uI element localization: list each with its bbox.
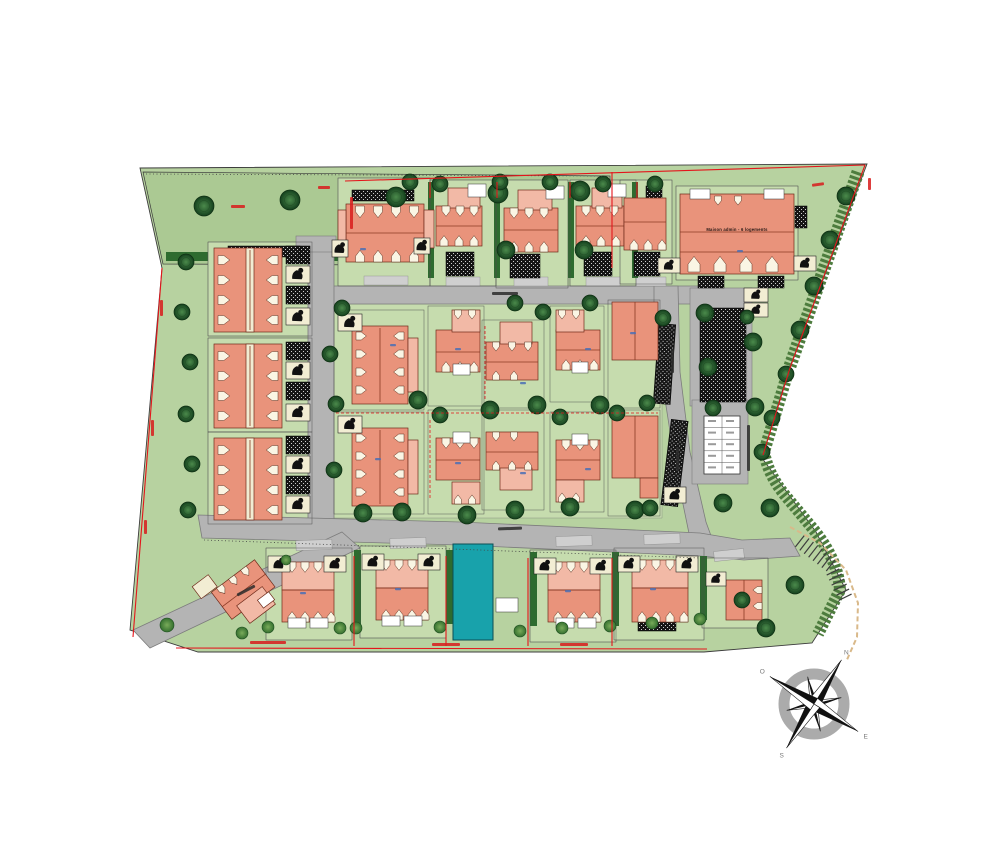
- car-glyph-icon: [298, 406, 303, 411]
- hatched-strip: [286, 342, 310, 360]
- bush-icon: [334, 622, 346, 634]
- dormer-box: [572, 434, 588, 445]
- car-parking-icon: [324, 556, 346, 572]
- hedge-strip: [446, 550, 453, 624]
- bike-shelter: [704, 416, 740, 474]
- bush-icon: [646, 617, 658, 629]
- tree-icon: [432, 407, 448, 423]
- micro-annotation: [868, 178, 871, 190]
- car-glyph-icon: [756, 305, 760, 309]
- car-glyph-icon: [669, 260, 674, 265]
- site-plan: Parking 16 places aériennesMaison admin …: [0, 0, 1000, 857]
- bike-cell-mark: [708, 432, 716, 434]
- car-parking-icon: [658, 258, 680, 273]
- building-roof: [500, 322, 532, 344]
- tree-icon: [626, 501, 644, 519]
- building: [352, 326, 418, 404]
- tree-icon: [178, 406, 194, 422]
- dormer-box: [382, 616, 400, 626]
- dormer-box: [578, 618, 596, 628]
- car-glyph-icon: [675, 489, 680, 494]
- car-glyph-icon: [805, 258, 810, 263]
- micro-annotation: [432, 643, 460, 646]
- tree-icon: [481, 401, 499, 419]
- hatched-strip: [510, 254, 540, 278]
- car-parking-icon: [286, 308, 310, 325]
- micro-annotation: [747, 425, 750, 471]
- bike-cell-mark: [708, 420, 716, 422]
- building: [612, 302, 658, 360]
- dormer-box: [288, 618, 306, 628]
- tree-icon: [182, 354, 198, 370]
- micro-annotation: [455, 348, 461, 350]
- tree-icon: [535, 304, 551, 320]
- dormer-box: [572, 362, 588, 373]
- building-roof: [640, 478, 658, 498]
- micro-annotation: [671, 349, 674, 373]
- micro-annotation: [520, 472, 526, 474]
- compass-letter: S: [780, 753, 785, 760]
- tree-icon: [354, 504, 372, 522]
- micro-annotation: [650, 588, 656, 590]
- bush-icon: [604, 620, 616, 632]
- car-parking-icon: [794, 256, 816, 271]
- building-roof: [408, 440, 418, 494]
- tree-icon: [734, 592, 750, 608]
- driveway-apron: [364, 276, 408, 285]
- bike-cell-mark: [726, 420, 734, 422]
- dormer-box: [453, 364, 470, 375]
- building-roof: [408, 338, 418, 392]
- building: [214, 438, 282, 520]
- building: [352, 428, 418, 506]
- driveway-apron: [586, 277, 620, 286]
- micro-annotation: [630, 332, 636, 334]
- bike-cell-mark: [726, 455, 734, 457]
- bike-cell-mark: [726, 432, 734, 434]
- tree-icon: [696, 304, 714, 322]
- tree-icon: [280, 190, 300, 210]
- car-glyph-icon: [601, 560, 606, 565]
- tree-icon: [639, 395, 655, 411]
- tree-icon: [699, 358, 717, 376]
- car-glyph-icon: [422, 240, 427, 245]
- car-parking-icon: [414, 238, 430, 254]
- car-parking-icon: [286, 362, 310, 379]
- car-parking-icon: [338, 314, 362, 331]
- bush-icon: [694, 613, 706, 625]
- tree-icon: [322, 346, 338, 362]
- dormer-box: [690, 189, 710, 199]
- driveway-apron: [390, 537, 426, 548]
- building: [680, 194, 794, 274]
- micro-annotation: [360, 248, 366, 250]
- hatched-strip: [286, 382, 310, 400]
- car-glyph-icon: [545, 560, 550, 565]
- driveway-apron: [446, 277, 480, 286]
- bush-icon: [262, 621, 274, 633]
- tree-icon: [754, 444, 770, 460]
- tree-icon: [178, 254, 194, 270]
- tree-icon: [764, 410, 780, 426]
- hatched-strip: [286, 476, 310, 494]
- admin-label: Maison admin - 6 logements: [706, 227, 768, 232]
- bike-cell-mark: [708, 455, 716, 457]
- tree-icon: [328, 396, 344, 412]
- car-glyph-icon: [298, 458, 303, 463]
- bush-icon: [350, 622, 362, 634]
- car-parking-icon: [534, 558, 556, 574]
- bush-icon: [160, 618, 174, 632]
- hedge-strip: [700, 556, 707, 620]
- water-basin: [453, 544, 493, 640]
- car-glyph-icon: [298, 498, 303, 503]
- tree-icon: [655, 310, 671, 326]
- car-parking-icon: [286, 456, 310, 473]
- car-parking-icon: [362, 554, 384, 570]
- tree-icon: [761, 499, 779, 517]
- car-glyph-icon: [429, 556, 434, 561]
- tree-icon: [714, 494, 732, 512]
- bike-cell-mark: [726, 443, 734, 445]
- parking-label: Parking 16 places aériennes: [733, 326, 738, 387]
- driveway-apron: [636, 277, 666, 286]
- micro-annotation: [250, 641, 286, 644]
- bike-cell-mark: [708, 466, 716, 468]
- tree-icon: [386, 187, 406, 207]
- tree-icon: [740, 310, 754, 324]
- tree-icon: [458, 506, 476, 524]
- micro-annotation: [737, 250, 743, 252]
- tree-icon: [326, 462, 342, 478]
- micro-annotation: [585, 468, 591, 470]
- tree-icon: [194, 196, 214, 216]
- hatched-strip: [758, 276, 784, 288]
- tree-icon: [705, 400, 721, 416]
- tree-icon: [506, 501, 524, 519]
- tree-icon: [393, 503, 411, 521]
- car-parking-icon: [664, 487, 686, 503]
- car-glyph-icon: [350, 418, 355, 423]
- car-parking-icon: [286, 404, 310, 421]
- micro-annotation: [492, 292, 518, 295]
- car-glyph-icon: [340, 242, 345, 247]
- building: [624, 198, 666, 250]
- tree-icon: [647, 176, 663, 192]
- car-glyph-icon: [350, 316, 355, 321]
- tree-icon: [746, 398, 764, 416]
- micro-annotation: [144, 520, 147, 534]
- building: [214, 248, 282, 332]
- micro-annotation: [231, 205, 245, 208]
- tree-icon: [744, 333, 762, 351]
- micro-annotation: [565, 590, 571, 592]
- building: [214, 344, 282, 428]
- micro-annotation: [585, 348, 591, 350]
- driveway-apron: [556, 535, 592, 546]
- micro-annotation: [560, 643, 588, 646]
- car-glyph-icon: [298, 310, 303, 315]
- tree-icon: [570, 181, 590, 201]
- driveway-apron: [644, 533, 680, 544]
- tree-icon: [542, 174, 558, 190]
- micro-annotation: [318, 186, 330, 189]
- car-glyph-icon: [716, 574, 720, 578]
- car-glyph-icon: [629, 558, 634, 563]
- tree-icon: [595, 176, 611, 192]
- car-parking-icon: [286, 496, 310, 513]
- tree-icon: [180, 502, 196, 518]
- tree-icon: [642, 500, 658, 516]
- tree-icon: [837, 187, 855, 205]
- dormer-box: [496, 598, 518, 612]
- micro-annotation: [676, 447, 679, 471]
- bike-cell-mark: [726, 466, 734, 468]
- tree-icon: [757, 619, 775, 637]
- car-parking-icon: [706, 572, 726, 586]
- car-glyph-icon: [373, 556, 378, 561]
- tree-icon: [561, 498, 579, 516]
- hatched-strip: [698, 276, 724, 288]
- car-parking-icon: [338, 416, 362, 433]
- tree-icon: [528, 396, 546, 414]
- dormer-box: [453, 432, 470, 443]
- micro-annotation: [520, 382, 526, 384]
- car-parking-icon: [618, 556, 640, 572]
- car-glyph-icon: [335, 558, 340, 563]
- micro-annotation: [160, 300, 163, 316]
- car-parking-icon: [332, 240, 348, 257]
- tree-icon: [786, 576, 804, 594]
- dormer-box: [468, 184, 486, 197]
- building-roof: [500, 468, 532, 490]
- hatched-strip: [286, 286, 310, 304]
- tree-icon: [552, 409, 568, 425]
- hatched-strip: [634, 252, 660, 276]
- driveway-apron: [514, 277, 548, 286]
- compass-letter: O: [760, 669, 765, 676]
- tree-icon: [174, 304, 190, 320]
- dormer-box: [310, 618, 328, 628]
- bush-icon: [434, 621, 446, 633]
- car-glyph-icon: [687, 558, 692, 563]
- tree-icon: [507, 295, 523, 311]
- tree-icon: [334, 300, 350, 316]
- tree-icon: [409, 391, 427, 409]
- bush-icon: [514, 625, 526, 637]
- tree-icon: [591, 396, 609, 414]
- car-glyph-icon: [756, 290, 760, 294]
- bush-icon: [281, 555, 291, 565]
- car-glyph-icon: [298, 268, 303, 273]
- bush-icon: [236, 627, 248, 639]
- micro-annotation: [151, 420, 154, 436]
- micro-annotation: [350, 197, 353, 229]
- hatched-strip: [446, 252, 474, 276]
- micro-annotation: [375, 458, 381, 460]
- compass-letter: N: [844, 649, 849, 656]
- bike-cell-mark: [708, 443, 716, 445]
- site-plan-svg: Parking 16 places aériennesMaison admin …: [0, 0, 1000, 857]
- tree-icon: [582, 295, 598, 311]
- tree-icon: [575, 241, 593, 259]
- tree-icon: [497, 241, 515, 259]
- bush-icon: [556, 622, 568, 634]
- compass-rose-icon: NESO: [760, 649, 869, 759]
- car-parking-icon: [286, 266, 310, 283]
- dormer-box: [404, 616, 422, 626]
- hatched-strip: [795, 206, 807, 228]
- car-parking-icon: [676, 556, 698, 572]
- car-parking-icon: [418, 554, 440, 570]
- micro-annotation: [395, 588, 401, 590]
- compass-letter: E: [864, 733, 869, 740]
- tree-icon: [402, 174, 418, 190]
- car-parking-icon: [744, 288, 768, 302]
- micro-annotation: [455, 462, 461, 464]
- car-glyph-icon: [298, 364, 303, 369]
- car-parking-icon: [590, 558, 612, 574]
- hatched-strip: [286, 436, 310, 454]
- tree-icon: [184, 456, 200, 472]
- tree-icon: [821, 231, 839, 249]
- driveway-apron: [296, 539, 332, 550]
- micro-annotation: [300, 592, 306, 594]
- dormer-box: [764, 189, 784, 199]
- micro-annotation: [390, 344, 396, 346]
